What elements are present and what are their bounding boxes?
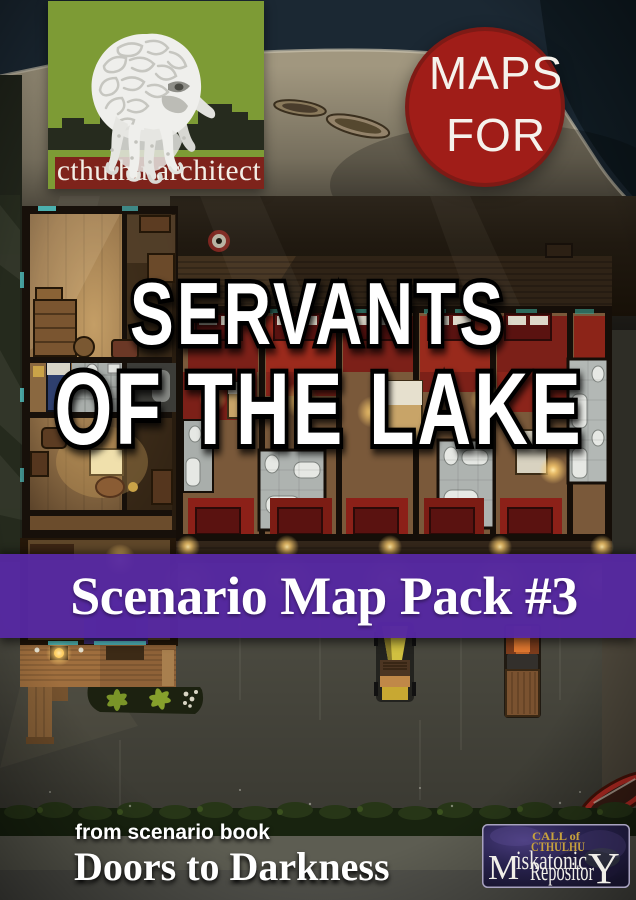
svg-text:M: M [488, 848, 519, 887]
svg-text:MAPS: MAPS [429, 47, 563, 99]
svg-text:OF THE LAKE: OF THE LAKE [54, 352, 583, 466]
svg-text:Repositor: Repositor [530, 857, 594, 886]
svg-text:SERVANTS: SERVANTS [130, 266, 506, 363]
svg-text:Y: Y [588, 844, 620, 888]
svg-text:FOR: FOR [446, 109, 546, 161]
